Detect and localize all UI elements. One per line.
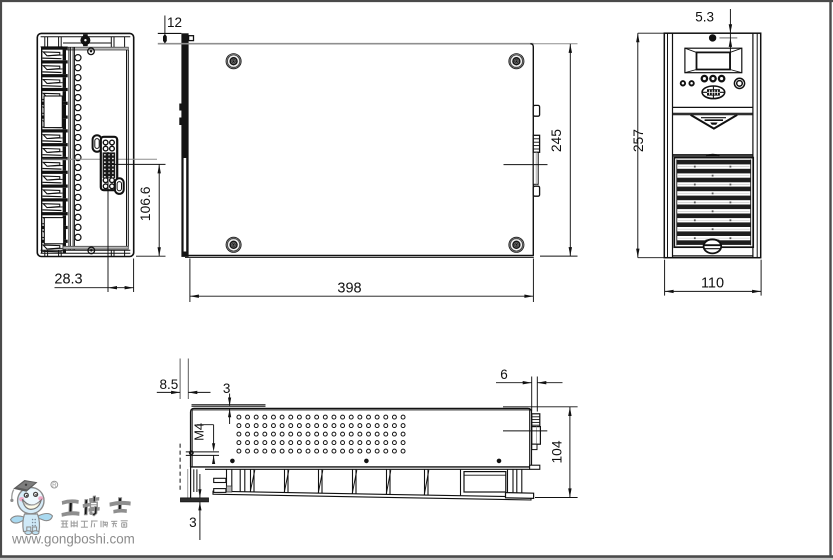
svg-text:257: 257	[631, 129, 646, 152]
svg-text:12: 12	[167, 15, 182, 30]
svg-text:398: 398	[337, 281, 361, 297]
svg-text:106.6: 106.6	[138, 186, 153, 221]
svg-text:245: 245	[549, 129, 564, 152]
svg-text:28.3: 28.3	[54, 271, 82, 287]
svg-text:www.gongboshi.com: www.gongboshi.com	[11, 532, 135, 547]
svg-text:8.5: 8.5	[160, 377, 179, 392]
svg-text:M4: M4	[191, 423, 206, 441]
svg-text:110: 110	[701, 276, 724, 292]
svg-text:5.3: 5.3	[695, 10, 714, 25]
svg-text:3: 3	[189, 515, 197, 530]
svg-text:R: R	[52, 482, 57, 489]
svg-text:104: 104	[549, 440, 564, 463]
svg-text:6: 6	[500, 367, 508, 382]
